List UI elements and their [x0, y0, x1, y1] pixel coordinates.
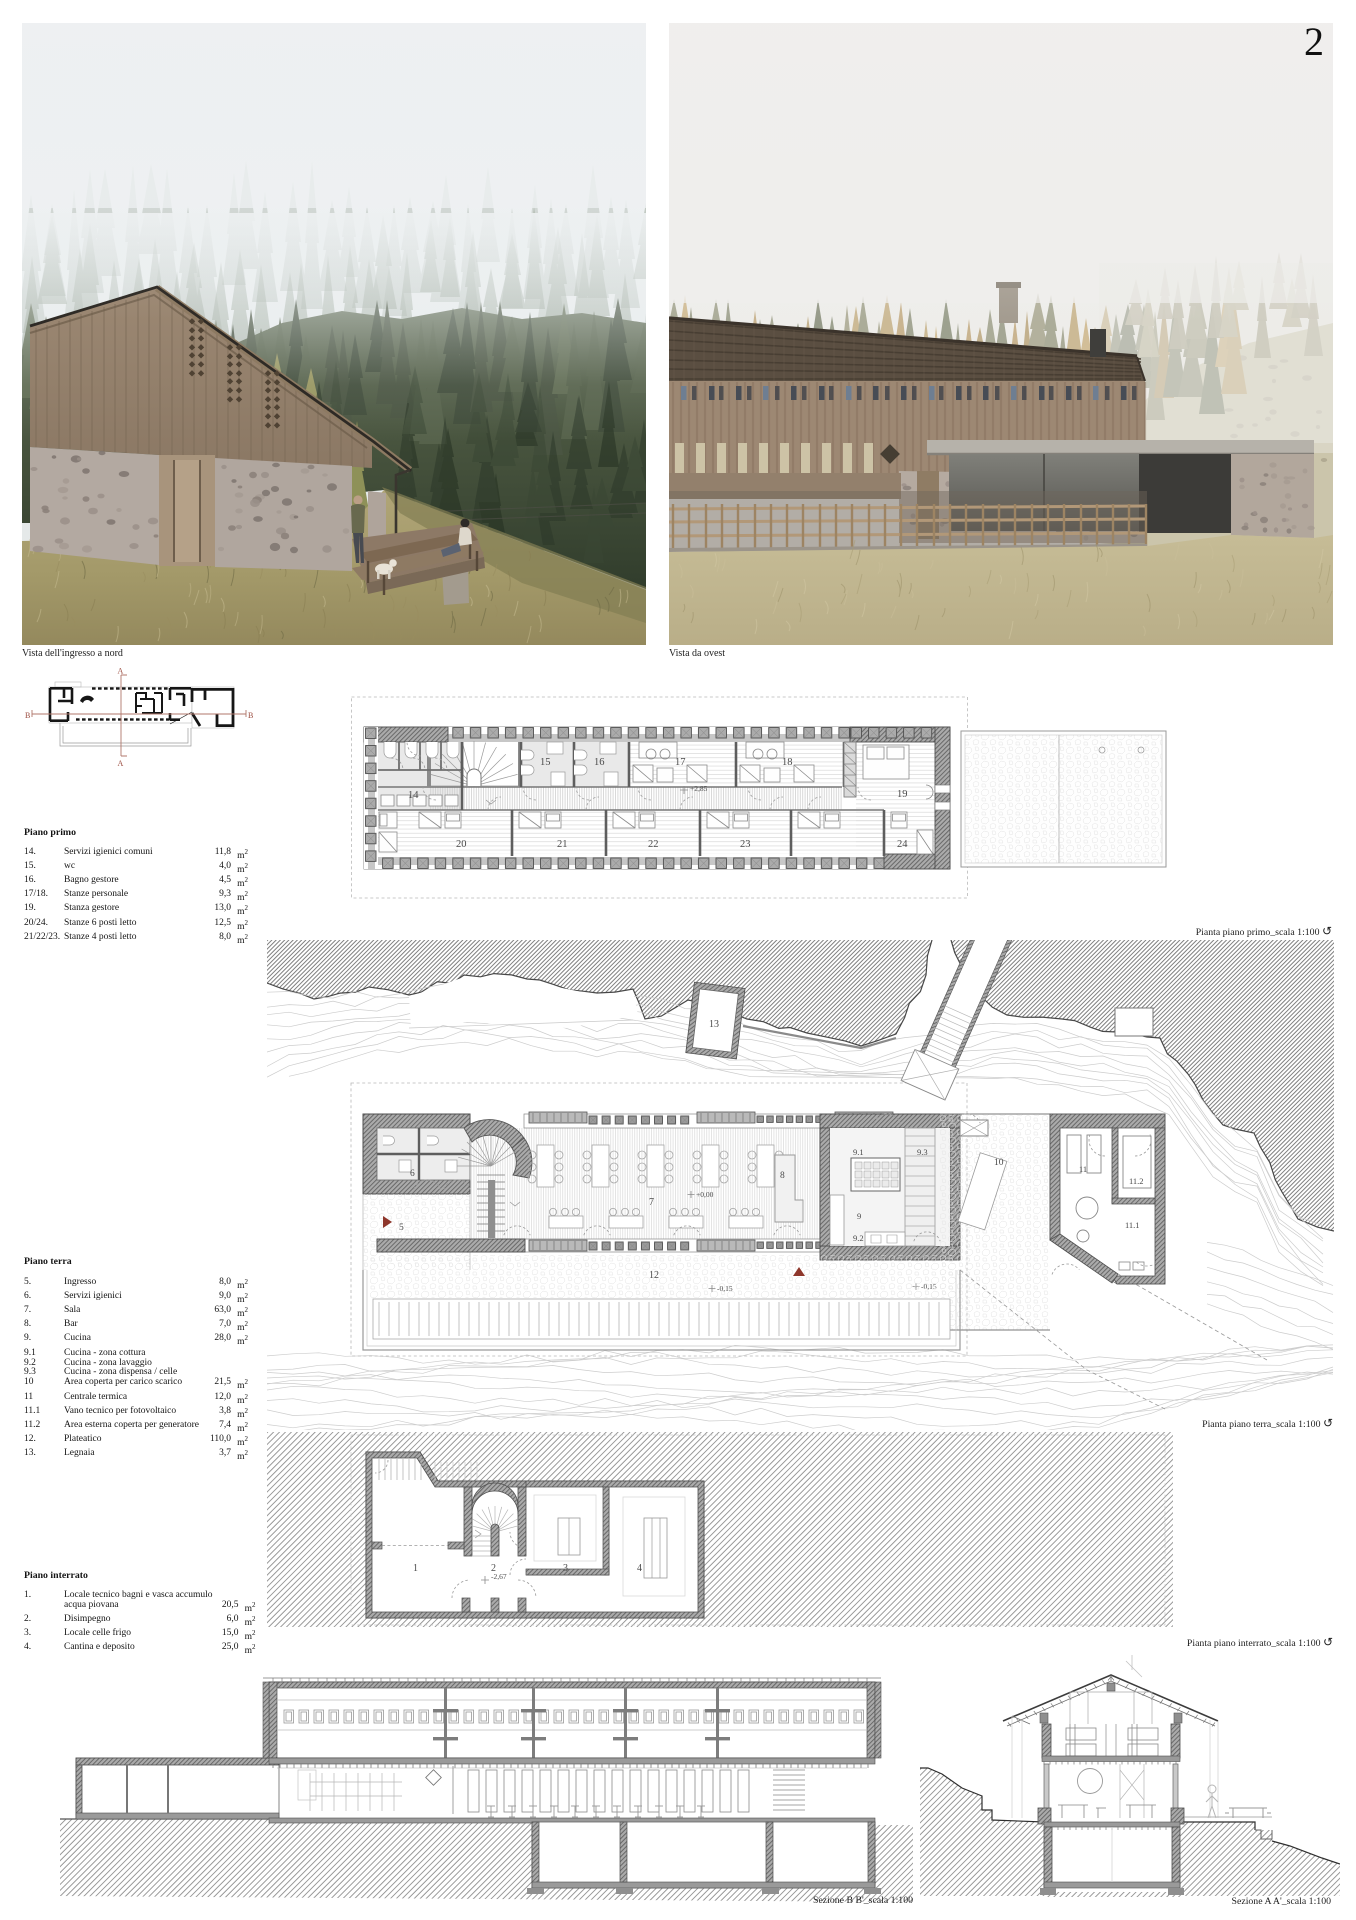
- svg-text:9.3: 9.3: [917, 1147, 928, 1157]
- svg-text:10: 10: [994, 1158, 1004, 1168]
- svg-text:6: 6: [410, 1169, 415, 1179]
- svg-text:B: B: [248, 711, 253, 720]
- svg-text:9.2: 9.2: [853, 1233, 864, 1243]
- svg-text:19: 19: [897, 789, 908, 800]
- svg-text:13: 13: [709, 1019, 719, 1030]
- svg-text:3: 3: [563, 1563, 568, 1574]
- svg-text:11: 11: [1079, 1164, 1087, 1174]
- svg-text:4: 4: [637, 1563, 642, 1574]
- svg-text:A: A: [118, 759, 124, 768]
- svg-text:14: 14: [408, 790, 419, 801]
- svg-text:20: 20: [456, 839, 467, 850]
- svg-text:21: 21: [557, 839, 568, 850]
- svg-text:24: 24: [897, 839, 908, 850]
- svg-text:+2,85: +2,85: [690, 784, 708, 793]
- svg-text:16: 16: [594, 757, 605, 768]
- svg-text:1: 1: [413, 1563, 418, 1574]
- svg-text:18: 18: [782, 757, 793, 768]
- svg-text:8: 8: [780, 1171, 785, 1181]
- svg-text:15: 15: [540, 757, 551, 768]
- svg-text:B: B: [25, 711, 30, 720]
- svg-text:12: 12: [649, 1270, 659, 1281]
- svg-text:+0,00: +0,00: [696, 1190, 714, 1199]
- svg-text:2: 2: [491, 1563, 496, 1574]
- svg-text:9: 9: [857, 1211, 861, 1221]
- svg-text:7: 7: [649, 1197, 654, 1208]
- svg-text:17: 17: [675, 757, 686, 768]
- svg-text:22: 22: [648, 839, 659, 850]
- svg-text:-0,15: -0,15: [717, 1284, 733, 1293]
- svg-text:A: A: [118, 668, 124, 676]
- svg-text:11.2: 11.2: [1129, 1176, 1144, 1186]
- svg-text:9.1: 9.1: [853, 1147, 864, 1157]
- svg-text:11.1: 11.1: [1125, 1220, 1140, 1230]
- svg-text:23: 23: [740, 839, 751, 850]
- svg-text:5: 5: [399, 1223, 404, 1233]
